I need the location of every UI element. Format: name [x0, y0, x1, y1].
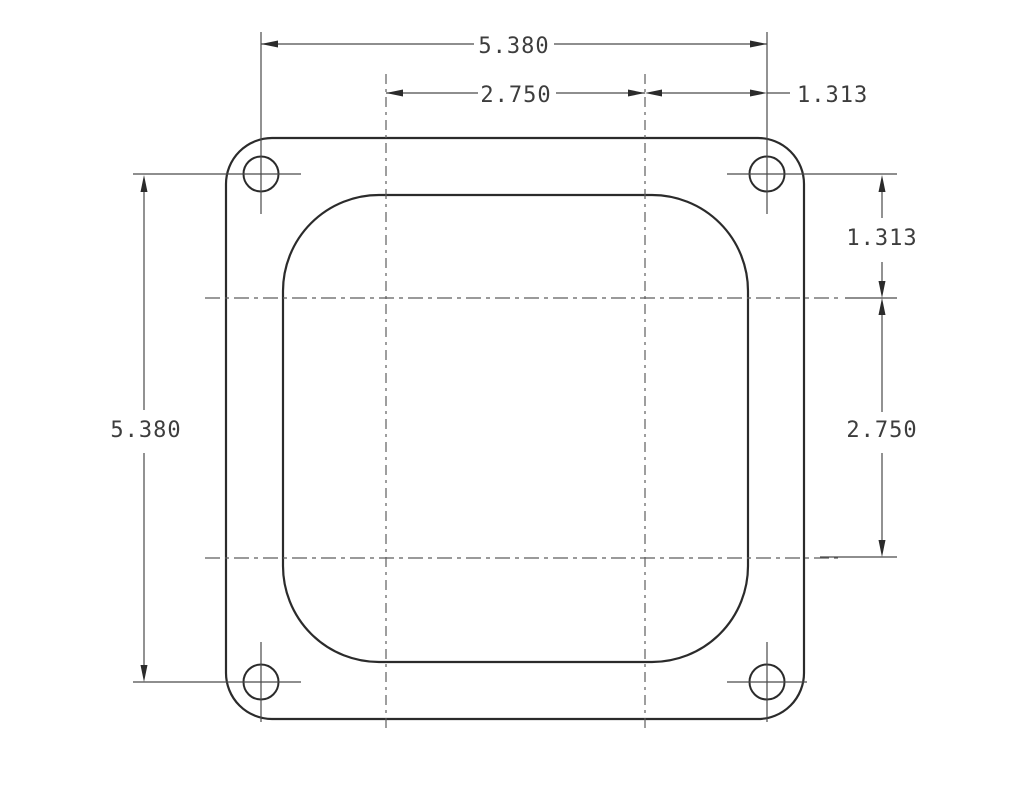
- dimension-right-upper-offset: 1.313: [846, 175, 917, 298]
- arrowhead-right: [628, 90, 645, 97]
- centerlines: [205, 74, 838, 728]
- arrowhead-down: [141, 665, 148, 682]
- dimension-right-bore-span: 2.750: [846, 298, 917, 557]
- outer-flange-outline: [226, 138, 804, 719]
- dim-right-upper-offset-label: 1.313: [846, 226, 917, 251]
- dimension-left-overall: 5.380: [110, 175, 181, 682]
- dimension-top-overall: 5.380: [261, 34, 767, 59]
- arrowhead-left: [645, 90, 662, 97]
- arrowhead-down: [879, 540, 886, 557]
- arrowhead-up: [879, 175, 886, 192]
- drawing-canvas: 5.380 2.750 1.313 1.313 2.750 5.380: [0, 0, 1024, 788]
- dimension-top-right-offset: 1.313: [645, 83, 868, 108]
- bore-outline: [283, 195, 748, 662]
- part-outlines: [226, 138, 804, 719]
- arrowhead-up: [879, 298, 886, 315]
- arrowhead-left: [386, 90, 403, 97]
- flange-technical-drawing: 5.380 2.750 1.313 1.313 2.750 5.380: [0, 0, 1024, 788]
- arrowhead-right: [750, 41, 767, 48]
- arrowhead-down: [879, 281, 886, 298]
- dimension-top-bore-span: 2.750: [386, 83, 645, 108]
- dim-top-overall-label: 5.380: [478, 34, 549, 59]
- dim-top-bore-span-label: 2.750: [480, 83, 551, 108]
- arrowhead-left: [261, 41, 278, 48]
- extension-lines: [133, 32, 897, 722]
- arrowhead-up: [141, 175, 148, 192]
- dim-left-overall-label: 5.380: [110, 418, 181, 443]
- arrowhead-right: [750, 90, 767, 97]
- dim-right-bore-span-label: 2.750: [846, 418, 917, 443]
- dim-top-right-offset-label: 1.313: [797, 83, 868, 108]
